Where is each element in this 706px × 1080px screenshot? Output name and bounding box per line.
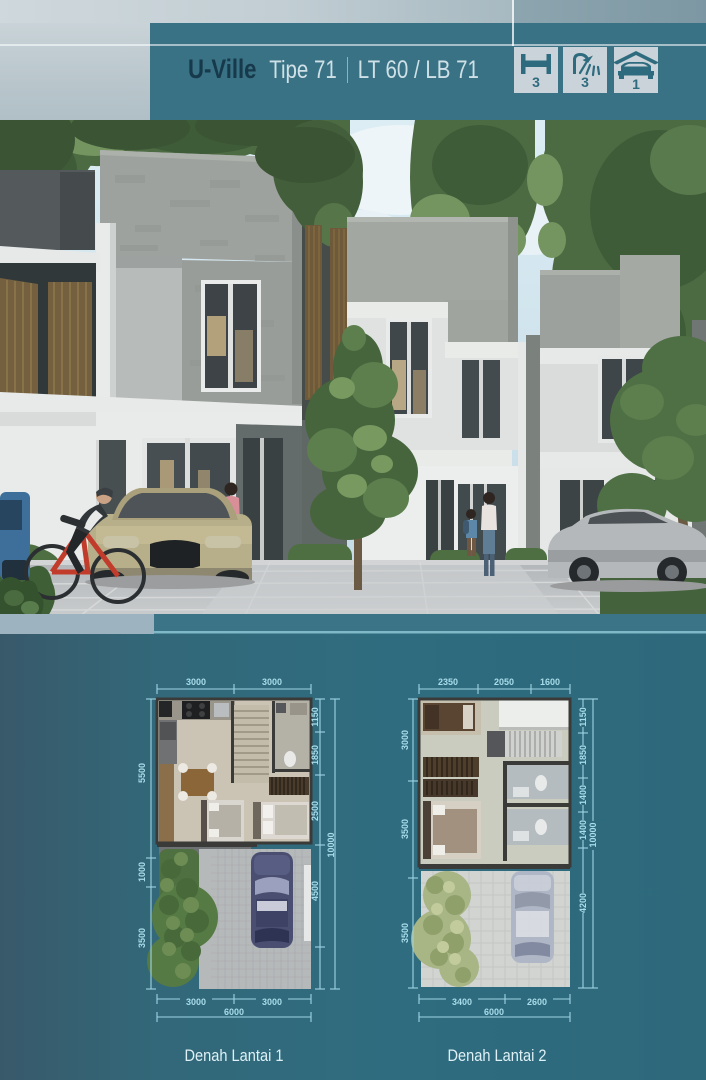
svg-text:2600: 2600 [527,997,547,1007]
svg-text:1000: 1000 [137,862,147,882]
svg-text:6000: 6000 [484,1007,504,1017]
svg-text:Denah Lantai 1: Denah Lantai 1 [185,1047,284,1065]
svg-text:1150: 1150 [578,707,588,727]
svg-text:5500: 5500 [137,763,147,783]
svg-text:3: 3 [581,74,589,90]
svg-text:1850: 1850 [578,745,588,765]
svg-text:3500: 3500 [137,928,147,948]
svg-text:3000: 3000 [186,997,206,1007]
svg-text:3400: 3400 [452,997,472,1007]
svg-text:1850: 1850 [310,745,320,765]
svg-text:3000: 3000 [262,997,282,1007]
svg-text:2350: 2350 [438,677,458,687]
svg-text:2500: 2500 [310,801,320,821]
svg-text:3000: 3000 [262,677,282,687]
svg-text:6000: 6000 [224,1007,244,1017]
svg-text:3000: 3000 [186,677,206,687]
svg-text:3500: 3500 [400,923,410,943]
svg-text:10000: 10000 [326,832,336,857]
svg-text:1: 1 [632,76,640,92]
svg-text:3500: 3500 [400,819,410,839]
svg-text:10000: 10000 [588,822,598,847]
svg-text:1400: 1400 [578,785,588,805]
svg-text:Denah Lantai 2: Denah Lantai 2 [448,1047,547,1065]
svg-text:1150: 1150 [310,707,320,727]
svg-text:3000: 3000 [400,730,410,750]
svg-text:4200: 4200 [578,893,588,913]
svg-text:3: 3 [532,74,540,90]
svg-text:2050: 2050 [494,677,514,687]
svg-text:1600: 1600 [540,677,560,687]
svg-text:4500: 4500 [310,881,320,901]
svg-text:1400: 1400 [578,820,588,840]
